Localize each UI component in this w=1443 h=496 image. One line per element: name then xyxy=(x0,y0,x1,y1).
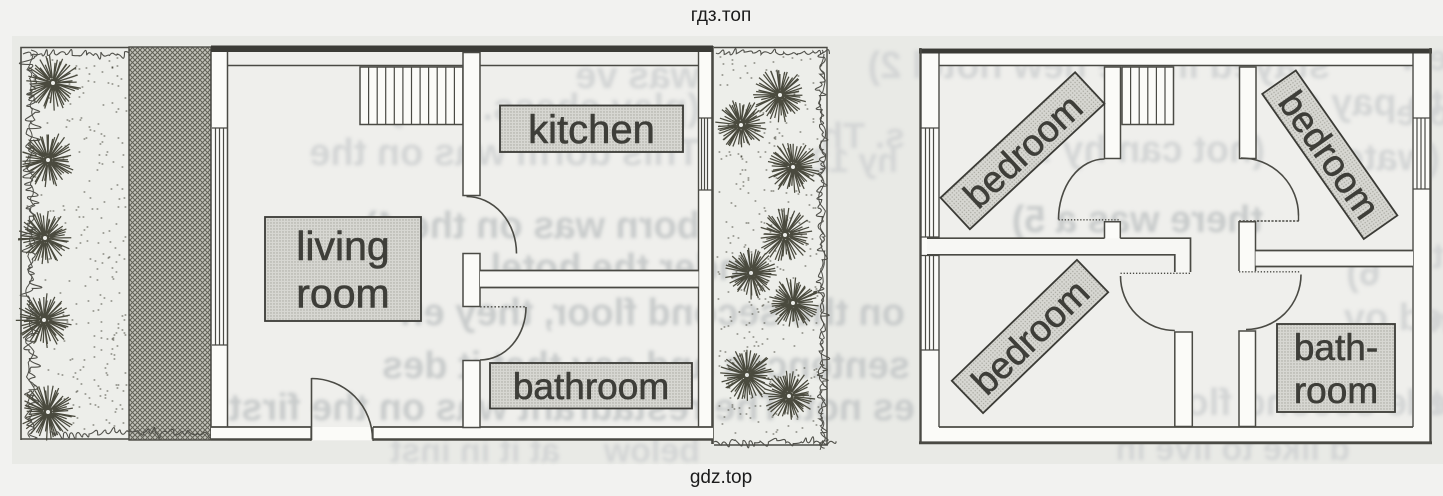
svg-text:bath-: bath- xyxy=(1294,327,1378,368)
svg-text:room: room xyxy=(1294,370,1378,411)
svg-text:room: room xyxy=(296,271,389,317)
svg-text:there was a 5): there was a 5) xyxy=(1012,199,1263,241)
svg-text:bathroom: bathroom xyxy=(513,366,669,407)
svg-text:kitchen: kitchen xyxy=(528,108,655,152)
svg-text:gdz.top: gdz.top xyxy=(690,467,752,488)
svg-text:Rt: Rt xyxy=(1432,235,1443,276)
svg-text:гдз.топ: гдз.топ xyxy=(691,5,752,26)
svg-text:living: living xyxy=(296,223,389,269)
